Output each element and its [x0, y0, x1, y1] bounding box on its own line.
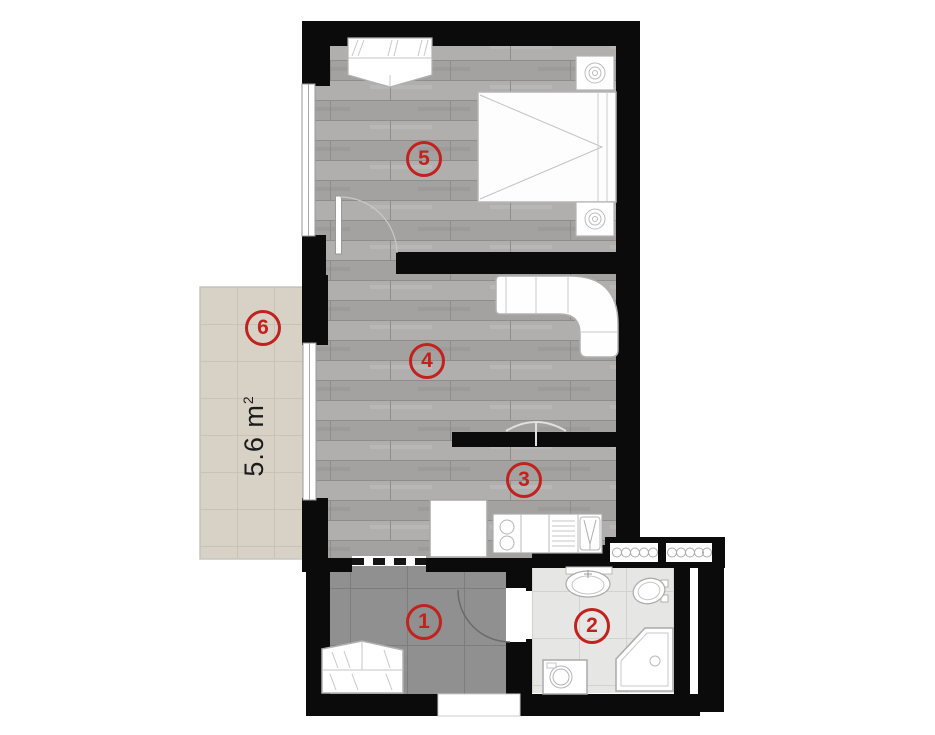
- bedroom-window: [302, 84, 315, 236]
- room-number: 5: [418, 147, 430, 170]
- nightstand-bottom: [576, 202, 614, 236]
- room-number: 4: [421, 349, 433, 372]
- wall-bottom-right: [520, 694, 700, 716]
- balcony-area-sup: 2: [240, 395, 256, 404]
- room-number: 6: [257, 316, 269, 339]
- radiator-left: [610, 543, 658, 562]
- wall-bottom-left: [306, 694, 438, 716]
- nightstand-top: [576, 56, 614, 90]
- kitchen-sink: [580, 517, 600, 550]
- room-badge-bedroom: 5: [406, 141, 442, 177]
- bathroom-sink: [566, 567, 612, 597]
- room-number: 2: [586, 614, 598, 637]
- hallway-furniture: [322, 641, 403, 693]
- hall-wardrobe: [322, 641, 403, 693]
- balcony-window-door: [303, 343, 316, 500]
- washing-machine: [543, 660, 587, 694]
- bedroom-door-leaf: [336, 196, 342, 254]
- bed: [478, 92, 616, 202]
- room-badge-hall: 1: [406, 604, 442, 640]
- room-badge-living: 4: [409, 343, 445, 379]
- fridge: [430, 500, 487, 557]
- wall-left-stub: [302, 235, 326, 275]
- kitchen-counter: [493, 514, 602, 553]
- wall-balcony-top: [302, 275, 328, 345]
- room-badge-bath: 2: [574, 608, 610, 644]
- wall-living-kitchen: [452, 432, 616, 447]
- balcony-area-value: 5.6 m: [239, 404, 269, 477]
- balcony-area-label: 5.6 m2: [239, 374, 271, 498]
- room-badge-balcony: 6: [245, 310, 281, 346]
- wall-right: [616, 21, 640, 568]
- wall-topleft-corner: [302, 21, 330, 86]
- kitchen-hall-threshold: [352, 556, 426, 566]
- wall-kitchen-hall-left: [306, 558, 352, 572]
- room-badge-kitchen: 3: [506, 462, 542, 498]
- radiator-right: [666, 543, 712, 562]
- wall-bedroom-living: [396, 252, 640, 274]
- floor-plan: 5 4 3 1 2 6 5.6 m2: [0, 0, 935, 735]
- entry-door-opening: [438, 694, 520, 716]
- wall-bath-right: [674, 568, 690, 705]
- room-number: 1: [418, 610, 430, 633]
- wall-outer-right: [698, 537, 724, 712]
- room-number: 3: [518, 468, 530, 491]
- floor-plan-drawing: [0, 0, 935, 735]
